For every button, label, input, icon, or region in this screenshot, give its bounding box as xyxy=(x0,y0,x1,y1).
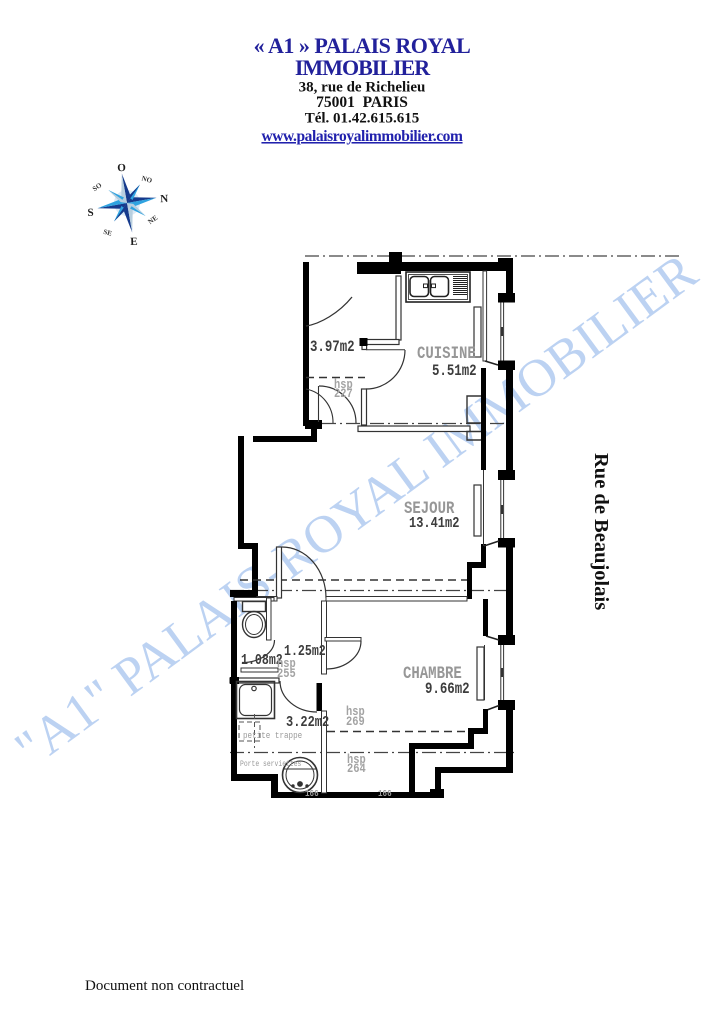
svg-text:www.palaisroyalimmobilier.com: www.palaisroyalimmobilier.com xyxy=(261,128,463,145)
svg-text:E: E xyxy=(130,236,138,248)
svg-text:IMMOBILIER: IMMOBILIER xyxy=(295,55,431,80)
svg-text:Tél. 01.42.615.615: Tél. 01.42.615.615 xyxy=(305,111,420,127)
svg-text:3.97m2: 3.97m2 xyxy=(310,339,355,357)
svg-text:166: 166 xyxy=(305,788,319,799)
svg-text:SE: SE xyxy=(102,228,113,238)
svg-text:227: 227 xyxy=(334,386,353,401)
svg-text:75001 PARIS: 75001 PARIS xyxy=(316,94,408,111)
svg-text:Document non contractuel: Document non contractuel xyxy=(85,978,244,994)
svg-text:NE: NE xyxy=(147,214,160,226)
svg-text:9.66m2: 9.66m2 xyxy=(425,681,470,699)
svg-text:13.41m2: 13.41m2 xyxy=(409,516,459,533)
svg-text:O: O xyxy=(117,162,126,174)
svg-text:3.22m2: 3.22m2 xyxy=(286,715,329,732)
svg-text:Porte serviettes: Porte serviettes xyxy=(240,760,301,769)
svg-text:S: S xyxy=(87,207,94,219)
svg-text:264: 264 xyxy=(347,761,366,776)
svg-text:5.51m2: 5.51m2 xyxy=(432,363,477,381)
svg-text:N: N xyxy=(160,193,168,205)
svg-text:269: 269 xyxy=(346,714,365,729)
svg-text:NO: NO xyxy=(141,174,154,185)
svg-text:SO: SO xyxy=(91,181,104,193)
svg-text:255: 255 xyxy=(277,666,296,681)
svg-text:Rue de Beaujolais: Rue de Beaujolais xyxy=(590,453,612,610)
svg-text:166: 166 xyxy=(378,788,392,799)
svg-text:petite trappe: petite trappe xyxy=(243,730,302,741)
svg-text:CUISINE: CUISINE xyxy=(417,344,476,364)
